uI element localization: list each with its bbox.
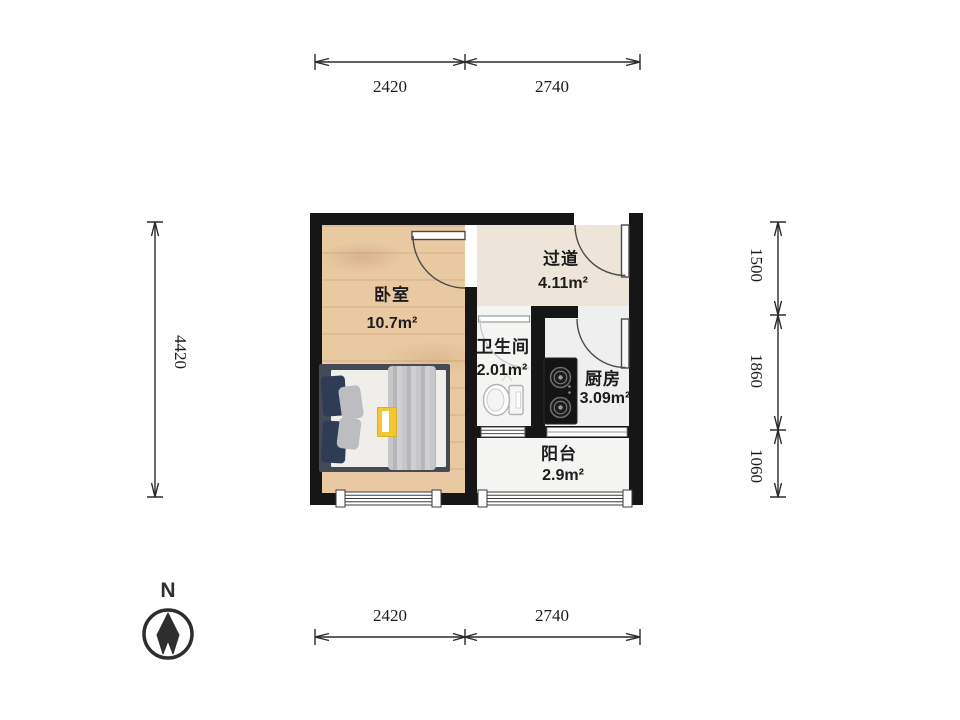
book-on-bed [377, 407, 397, 437]
wall-bottom [310, 493, 643, 505]
dim-bottom-left: 2420 [373, 606, 407, 626]
dim-right-middle: 1860 [746, 354, 766, 388]
room-label-kitchen: 厨房 [585, 365, 621, 390]
room-label-balcony: 阳台 [541, 440, 577, 465]
room-area-balcony: 2.9m² [542, 467, 584, 485]
kitchen-door-opening [578, 306, 629, 320]
floor-plan-canvas: 卧室 10.7m² 过道 4.11m² 卫生间 2.01m² 厨房 3.09m²… [0, 0, 960, 720]
dimension-line-left [147, 222, 163, 497]
wall-bedroom-divider [465, 287, 477, 493]
pillow-gray-bottom [336, 417, 362, 450]
room-area-kitchen: 3.09m² [580, 390, 631, 408]
pillow-gray-top [338, 385, 364, 421]
dimension-line-top [315, 54, 640, 70]
room-area-hallway: 4.11m² [538, 275, 588, 293]
room-label-hallway: 过道 [543, 245, 579, 270]
compass-circle [144, 610, 192, 658]
dimension-line-right [770, 222, 786, 497]
wall-service-row [465, 426, 643, 438]
wall-top [310, 213, 574, 225]
room-label-bedroom: 卧室 [374, 281, 410, 306]
room-area-bathroom: 2.01m² [477, 362, 528, 380]
dim-left-total: 4420 [170, 335, 190, 369]
dim-top-right: 2740 [535, 77, 569, 97]
wall-bath-kitchen [531, 306, 545, 426]
compass-north-label: N [160, 579, 175, 603]
compass-needle [157, 613, 179, 654]
book-page [382, 411, 389, 432]
room-area-bedroom: 10.7m² [367, 315, 418, 333]
room-label-bathroom: 卫生间 [476, 333, 530, 358]
compass-icon [144, 610, 192, 658]
dim-right-upper: 1500 [746, 248, 766, 282]
dim-bottom-right: 2740 [535, 606, 569, 626]
wall-right [629, 213, 643, 505]
dim-top-left: 2420 [373, 77, 407, 97]
dimension-line-bottom [315, 629, 640, 645]
dim-right-lower: 1060 [746, 449, 766, 483]
